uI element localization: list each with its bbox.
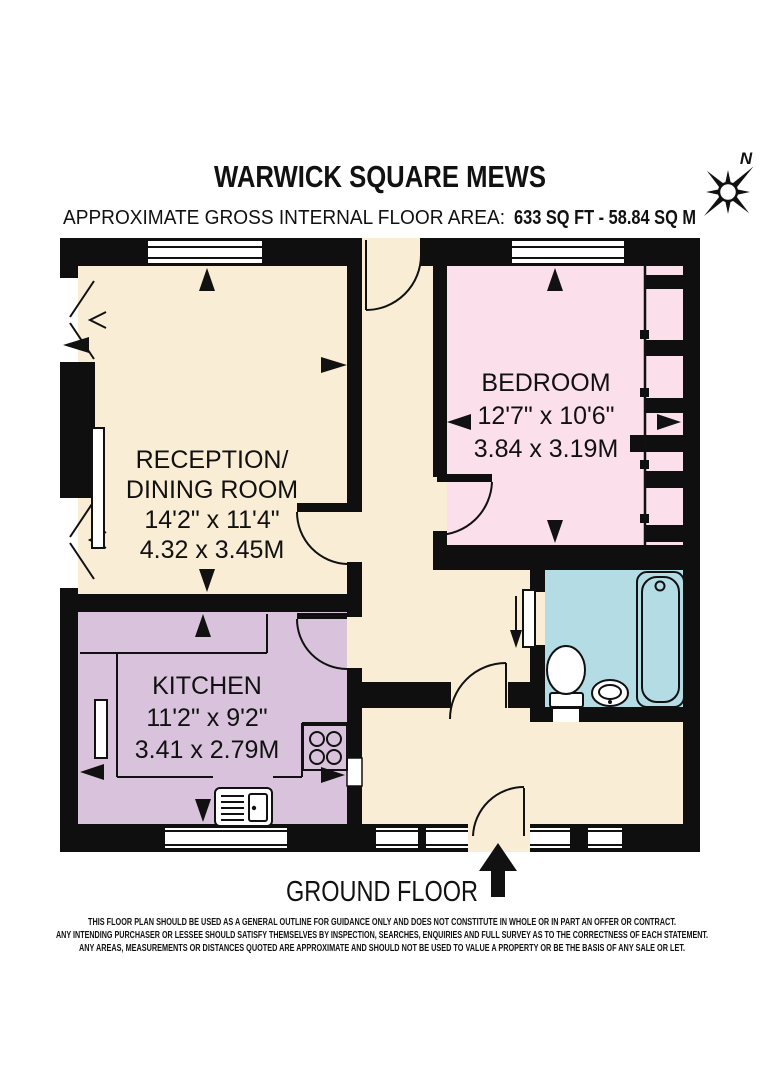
window-kitchen-left xyxy=(95,700,107,758)
compass-north-label: N xyxy=(740,149,753,168)
bedroom-dims-imperial: 12'7" x 10'6" xyxy=(477,402,614,430)
reception-door-panel xyxy=(297,503,362,512)
floor-plan-page: WARWICK SQUARE MEWS APPROXIMATE GROSS IN… xyxy=(0,0,764,1080)
window-bay-lower xyxy=(60,498,78,588)
reception-name-1: RECEPTION/ xyxy=(136,446,289,474)
disclaimer-line-3: ANY AREAS, MEASUREMENTS OR DISTANCES QUO… xyxy=(79,943,685,954)
reception-name-2: DINING ROOM xyxy=(126,476,298,504)
window-bay-upper xyxy=(60,278,78,362)
toilet-icon xyxy=(547,646,585,707)
bedroom-name: BEDROOM xyxy=(481,369,610,397)
bedroom-dims-metric: 3.84 x 3.19M xyxy=(474,435,619,463)
bathroom-wall-gap xyxy=(553,709,579,722)
disclaimer-line-1: THIS FLOOR PLAN SHOULD BE USED AS A GENE… xyxy=(88,917,676,928)
disclaimer: THIS FLOOR PLAN SHOULD BE USED AS A GENE… xyxy=(56,917,708,954)
window-reception-left xyxy=(92,428,104,548)
rear-door-opening xyxy=(362,238,420,266)
reception-dims-imperial: 14'2" x 11'4" xyxy=(144,506,279,534)
floor-plan-svg: WARWICK SQUARE MEWS APPROXIMATE GROSS IN… xyxy=(0,0,764,1080)
area-label: APPROXIMATE GROSS INTERNAL FLOOR AREA: xyxy=(63,207,505,229)
compass-icon: N xyxy=(704,149,754,216)
reception-dims-metric: 4.32 x 3.45M xyxy=(140,536,285,564)
area-value: 633 SQ FT - 58.84 SQ M xyxy=(514,207,696,229)
kitchen-dims-imperial: 11'2" x 9'2" xyxy=(146,704,267,732)
basin-icon xyxy=(592,680,628,706)
kitchen-sink-icon xyxy=(215,788,272,826)
kitchen-hatch xyxy=(347,758,362,786)
kitchen-dims-metric: 3.41 x 2.79M xyxy=(135,736,280,764)
disclaimer-line-2: ANY INTENDING PURCHASER OR LESSEE SHOULD… xyxy=(56,930,708,941)
window-bedroom-top xyxy=(512,241,624,263)
kitchen-door-panel xyxy=(297,613,347,619)
bathroom-sliding-door xyxy=(523,590,535,647)
window-reception-top xyxy=(148,241,262,263)
plan-title: WARWICK SQUARE MEWS xyxy=(214,159,546,194)
bedroom-door-panel xyxy=(437,474,492,482)
floor-label: GROUND FLOOR xyxy=(286,876,478,908)
kitchen-name: KITCHEN xyxy=(152,672,262,700)
